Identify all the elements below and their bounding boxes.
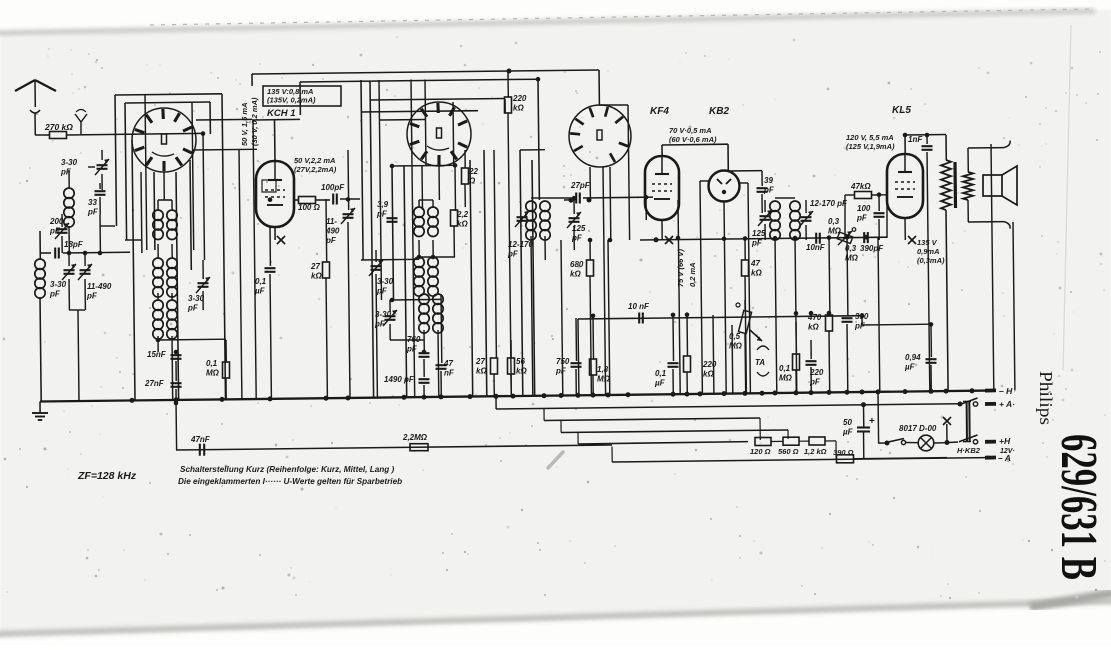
svg-text:0,2 mA: 0,2 mA xyxy=(688,262,697,287)
svg-text:629/631 B: 629/631 B xyxy=(1050,434,1107,580)
svg-text:KCH 1: KCH 1 xyxy=(267,108,296,119)
svg-text:H·KB2: H·KB2 xyxy=(957,446,981,455)
svg-text:kΩ: kΩ xyxy=(311,272,322,281)
svg-text:10 nF: 10 nF xyxy=(628,302,650,311)
svg-text:pF: pF xyxy=(507,250,519,259)
svg-text:pF: pF xyxy=(406,345,418,354)
svg-text:+ A·: + A· xyxy=(999,399,1015,409)
svg-text:27nF: 27nF xyxy=(144,379,165,388)
svg-text:pF: pF xyxy=(854,322,866,331)
svg-text:(27V,2,2mA): (27V,2,2mA) xyxy=(294,165,337,174)
svg-text:pF: pF xyxy=(60,168,72,177)
svg-text:pF: pF xyxy=(87,208,99,217)
svg-text:KL5: KL5 xyxy=(892,105,911,116)
svg-text:MΩ: MΩ xyxy=(779,374,793,383)
svg-text:Die eingeklammerten I······ U: Die eingeklammerten I······ U-Werte gelt… xyxy=(178,477,402,486)
svg-text:3-30: 3-30 xyxy=(188,294,205,303)
svg-text:kΩ: kΩ xyxy=(516,367,527,376)
svg-text:125: 125 xyxy=(752,229,766,238)
svg-text:0,5: 0,5 xyxy=(729,332,741,341)
svg-text:3-30: 3-30 xyxy=(377,277,394,286)
svg-text:(60 V·0,6 mA): (60 V·0,6 mA) xyxy=(669,135,717,144)
svg-text:75 V (66 V): 75 V (66 V) xyxy=(676,249,685,287)
svg-text:pF: pF xyxy=(86,292,98,301)
svg-text:nF: nF xyxy=(444,369,455,378)
svg-text:120 Ω: 120 Ω xyxy=(750,447,771,456)
svg-text:2,2MΩ: 2,2MΩ xyxy=(402,433,428,442)
svg-text:pF: pF xyxy=(571,234,583,243)
svg-text:kΩ: kΩ xyxy=(570,270,581,279)
svg-text:100pF: 100pF xyxy=(321,183,345,192)
svg-text:0,9mA: 0,9mA xyxy=(917,247,940,256)
svg-text:kΩ: kΩ xyxy=(476,367,487,376)
svg-text:pF: pF xyxy=(49,290,61,299)
svg-text:27pF: 27pF xyxy=(570,181,591,190)
svg-text:3,9: 3,9 xyxy=(377,200,389,209)
svg-text:pF: pF xyxy=(856,214,868,223)
svg-text:0,1: 0,1 xyxy=(206,359,218,368)
svg-text:27: 27 xyxy=(310,262,320,271)
svg-text:1nF: 1nF xyxy=(908,135,923,144)
svg-text:KB2: KB2 xyxy=(709,106,729,117)
svg-text:39: 39 xyxy=(764,176,773,185)
svg-text:MΩ: MΩ xyxy=(206,369,220,378)
svg-text:0,3: 0,3 xyxy=(828,217,840,226)
svg-text:1,8: 1,8 xyxy=(597,365,609,374)
svg-text:18pF: 18pF xyxy=(64,240,84,249)
svg-text:760: 760 xyxy=(407,335,421,344)
svg-text:µF: µF xyxy=(254,287,266,296)
svg-text:100 Ω: 100 Ω xyxy=(298,203,321,212)
svg-text:680: 680 xyxy=(570,260,584,269)
svg-text:– H: – H xyxy=(999,386,1013,396)
svg-text:pF: pF xyxy=(187,304,199,313)
svg-text:1490 pF: 1490 pF xyxy=(384,375,415,384)
svg-text:0,94: 0,94 xyxy=(905,353,921,362)
svg-text:kΩ: kΩ xyxy=(457,220,468,229)
svg-text:µF: µF xyxy=(904,363,916,372)
svg-text:560 Ω: 560 Ω xyxy=(778,447,799,456)
svg-text:0,1: 0,1 xyxy=(779,364,791,373)
svg-text:11-490: 11-490 xyxy=(87,282,112,291)
svg-text:11-: 11- xyxy=(326,217,337,226)
svg-text:47kΩ: 47kΩ xyxy=(850,182,871,191)
svg-text:KF4: KF4 xyxy=(650,106,669,117)
svg-text:12-170: 12-170 xyxy=(508,240,533,249)
svg-text:22: 22 xyxy=(468,167,478,176)
svg-text:27: 27 xyxy=(475,357,485,366)
svg-text:1,2 kΩ: 1,2 kΩ xyxy=(804,447,827,456)
svg-text:56: 56 xyxy=(516,357,525,366)
svg-text:50 V, 1,5 mA: 50 V, 1,5 mA xyxy=(240,102,249,146)
svg-text:– A: – A xyxy=(998,453,1011,463)
svg-text:15nF: 15nF xyxy=(147,350,167,359)
svg-text:pF: pF xyxy=(751,239,763,248)
svg-text:(30 V, 0,2 mA): (30 V, 0,2 mA) xyxy=(250,97,259,146)
svg-text:220: 220 xyxy=(512,94,527,103)
svg-text:3-30: 3-30 xyxy=(61,158,78,167)
svg-text:47: 47 xyxy=(750,259,760,268)
svg-text:70 V·0,5 mA: 70 V·0,5 mA xyxy=(669,126,712,135)
svg-text:(135V, 0,2mA): (135V, 0,2mA) xyxy=(267,96,316,105)
svg-text:pF: pF xyxy=(763,186,775,195)
svg-text:Philips: Philips xyxy=(1036,371,1056,425)
svg-text:kΩ: kΩ xyxy=(513,104,524,113)
svg-text:MΩ: MΩ xyxy=(729,342,743,351)
svg-text:3-30: 3-30 xyxy=(375,310,392,319)
svg-text:50 V,2,2 mA: 50 V,2,2 mA xyxy=(294,156,335,165)
svg-text:Schalterstellung Kurz (Reihe: Schalterstellung Kurz (Reihenfolge: Kurz… xyxy=(180,465,395,474)
svg-text:ZF=128 kHz: ZF=128 kHz xyxy=(77,470,137,482)
svg-text:pF: pF xyxy=(376,287,388,296)
svg-text:120 V, 5,5 mA: 120 V, 5,5 mA xyxy=(846,133,894,142)
svg-text:270 kΩ: 270 kΩ xyxy=(44,122,73,132)
svg-text:µF: µF xyxy=(842,428,854,437)
svg-text:+H: +H xyxy=(999,436,1011,446)
svg-text:390pF: 390pF xyxy=(860,244,884,253)
svg-text:µF: µF xyxy=(654,379,666,388)
svg-text:47: 47 xyxy=(443,359,453,368)
svg-text:pF: pF xyxy=(376,210,388,219)
svg-text:0,1: 0,1 xyxy=(655,369,667,378)
svg-text:135 V: 135 V xyxy=(917,238,938,247)
svg-text:TA: TA xyxy=(755,358,765,367)
svg-text:47nF: 47nF xyxy=(190,435,211,444)
svg-text:490: 490 xyxy=(325,227,340,236)
svg-text:390 Ω: 390 Ω xyxy=(833,448,854,457)
svg-text:+: + xyxy=(869,416,875,427)
svg-text:220: 220 xyxy=(702,360,717,369)
svg-text:kΩ: kΩ xyxy=(703,370,714,379)
svg-text:12-170 pF: 12-170 pF xyxy=(810,199,848,208)
svg-text:(125 V,1,9mA): (125 V,1,9mA) xyxy=(846,142,895,151)
svg-text:0,1: 0,1 xyxy=(255,277,267,286)
svg-text:10nF: 10nF xyxy=(806,243,826,252)
svg-text:50: 50 xyxy=(843,418,852,427)
svg-text:kΩ: kΩ xyxy=(808,323,819,332)
svg-text:pF: pF xyxy=(555,367,567,376)
svg-text:8017 D-00: 8017 D-00 xyxy=(899,424,937,433)
svg-text:kΩ: kΩ xyxy=(751,269,762,278)
svg-text:33: 33 xyxy=(88,198,97,207)
svg-text:100: 100 xyxy=(857,204,871,213)
svg-text:(0,3mA): (0,3mA) xyxy=(917,256,945,265)
svg-text:3-30: 3-30 xyxy=(50,280,67,289)
svg-text:MΩ: MΩ xyxy=(597,375,611,384)
